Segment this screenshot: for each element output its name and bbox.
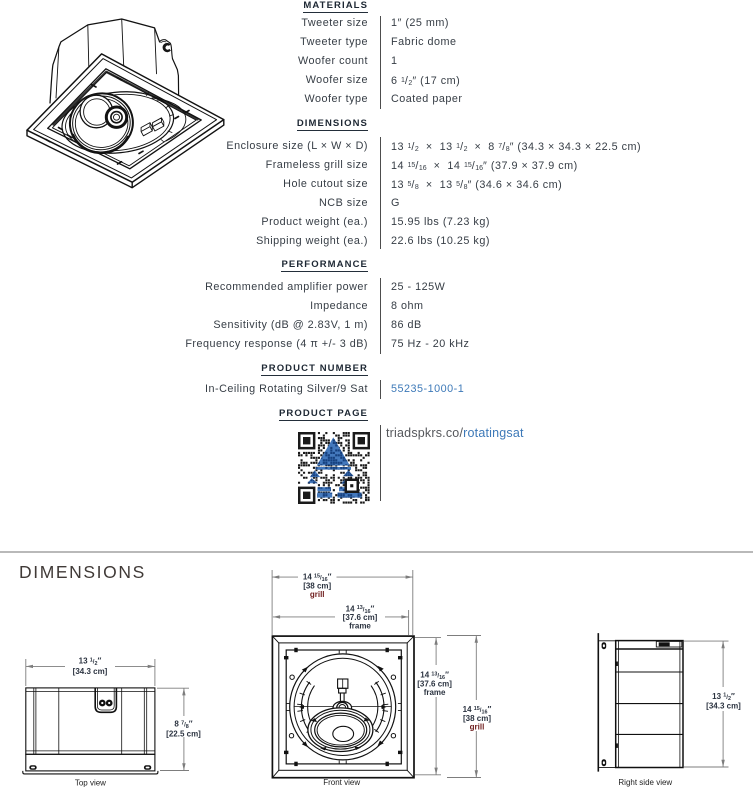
svg-text:Right side view: Right side view: [618, 778, 672, 787]
svg-text:frame: frame: [349, 622, 371, 631]
svg-text:Top view: Top view: [75, 779, 106, 787]
svg-text:8 7/8″: 8 7/8″: [174, 720, 192, 730]
svg-text:[34.3 cm]: [34.3 cm]: [73, 667, 108, 676]
svg-text:13 1/2″: 13 1/2″: [79, 657, 102, 667]
svg-text:[37.6 cm]: [37.6 cm]: [417, 679, 452, 688]
svg-text:grill: grill: [310, 590, 325, 599]
svg-text:[22.5 cm]: [22.5 cm]: [166, 730, 201, 739]
svg-text:[34.3 cm]: [34.3 cm]: [706, 702, 741, 711]
svg-text:frame: frame: [424, 688, 446, 697]
svg-text:Front view: Front view: [323, 778, 360, 787]
svg-text:grill: grill: [470, 722, 485, 731]
